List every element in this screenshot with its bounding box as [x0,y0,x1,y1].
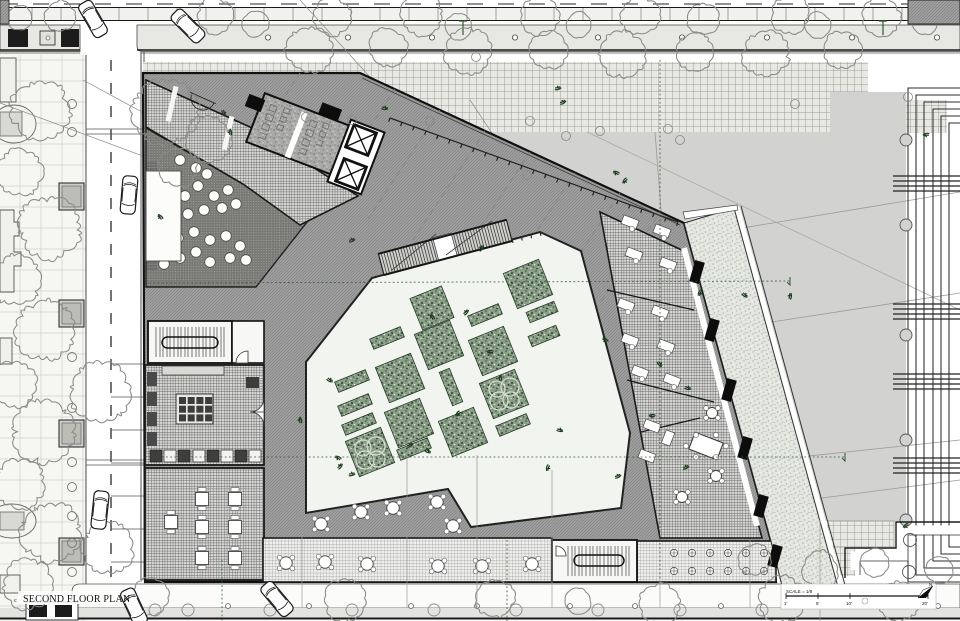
svg-text:SCALE = 1/8: SCALE = 1/8 [786,589,813,594]
svg-text:10': 10' [846,601,852,606]
svg-text:c: c [14,598,17,604]
svg-text:N: N [929,582,932,587]
svg-text:SECOND FLOOR PLAN: SECOND FLOOR PLAN [23,594,130,605]
svg-text:5': 5' [816,601,820,606]
svg-text:20': 20' [922,601,928,606]
svg-text:1': 1' [784,601,788,606]
